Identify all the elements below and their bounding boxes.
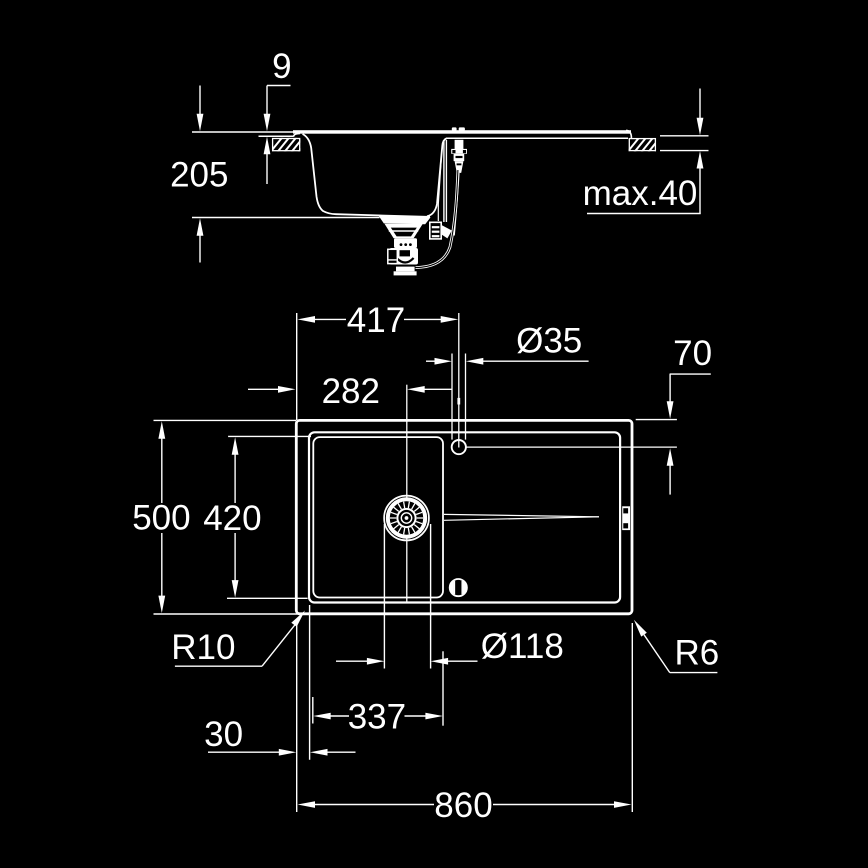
svg-text:860: 860 [434, 786, 492, 825]
svg-text:417: 417 [347, 301, 405, 340]
svg-text:9: 9 [272, 47, 291, 86]
svg-text:Ø118: Ø118 [481, 627, 564, 666]
svg-text:337: 337 [348, 698, 406, 737]
svg-text:max.40: max.40 [583, 174, 698, 213]
svg-text:Ø35: Ø35 [516, 322, 582, 361]
svg-text:282: 282 [322, 372, 380, 411]
svg-text:500: 500 [132, 498, 190, 537]
svg-text:420: 420 [203, 499, 261, 538]
svg-text:R10: R10 [171, 628, 235, 667]
svg-text:R6: R6 [675, 633, 720, 672]
svg-text:70: 70 [673, 334, 712, 373]
svg-text:205: 205 [170, 156, 228, 195]
svg-text:30: 30 [204, 715, 243, 754]
